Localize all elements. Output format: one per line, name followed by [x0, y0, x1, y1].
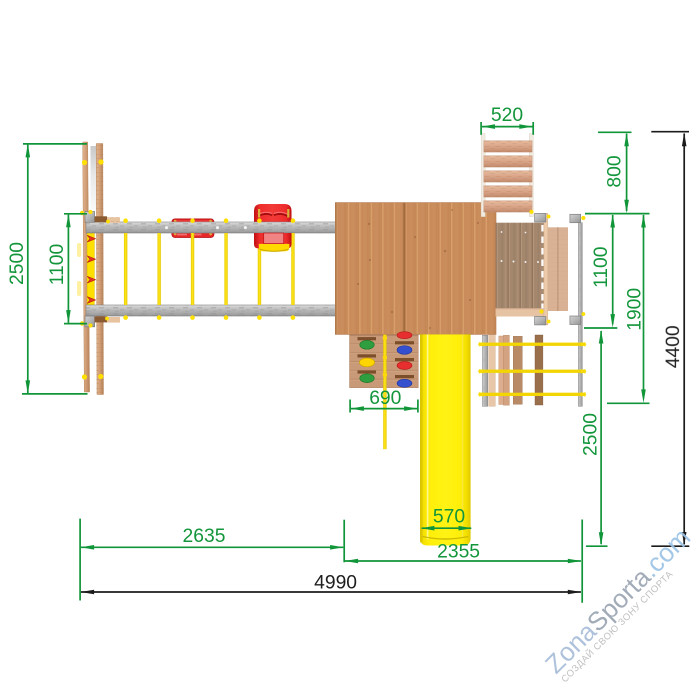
- svg-text:520: 520: [491, 105, 523, 126]
- svg-text:4990: 4990: [314, 573, 357, 594]
- svg-text:1100: 1100: [47, 244, 68, 285]
- svg-text:4400: 4400: [663, 325, 684, 368]
- svg-text:690: 690: [369, 388, 401, 409]
- svg-text:2500: 2500: [580, 413, 601, 456]
- svg-text:2355: 2355: [437, 542, 480, 563]
- svg-text:2500: 2500: [7, 242, 28, 285]
- svg-text:570: 570: [433, 507, 465, 528]
- svg-text:800: 800: [604, 155, 625, 187]
- svg-text:1900: 1900: [624, 288, 645, 331]
- svg-text:2635: 2635: [183, 526, 226, 547]
- svg-text:1100: 1100: [591, 247, 612, 288]
